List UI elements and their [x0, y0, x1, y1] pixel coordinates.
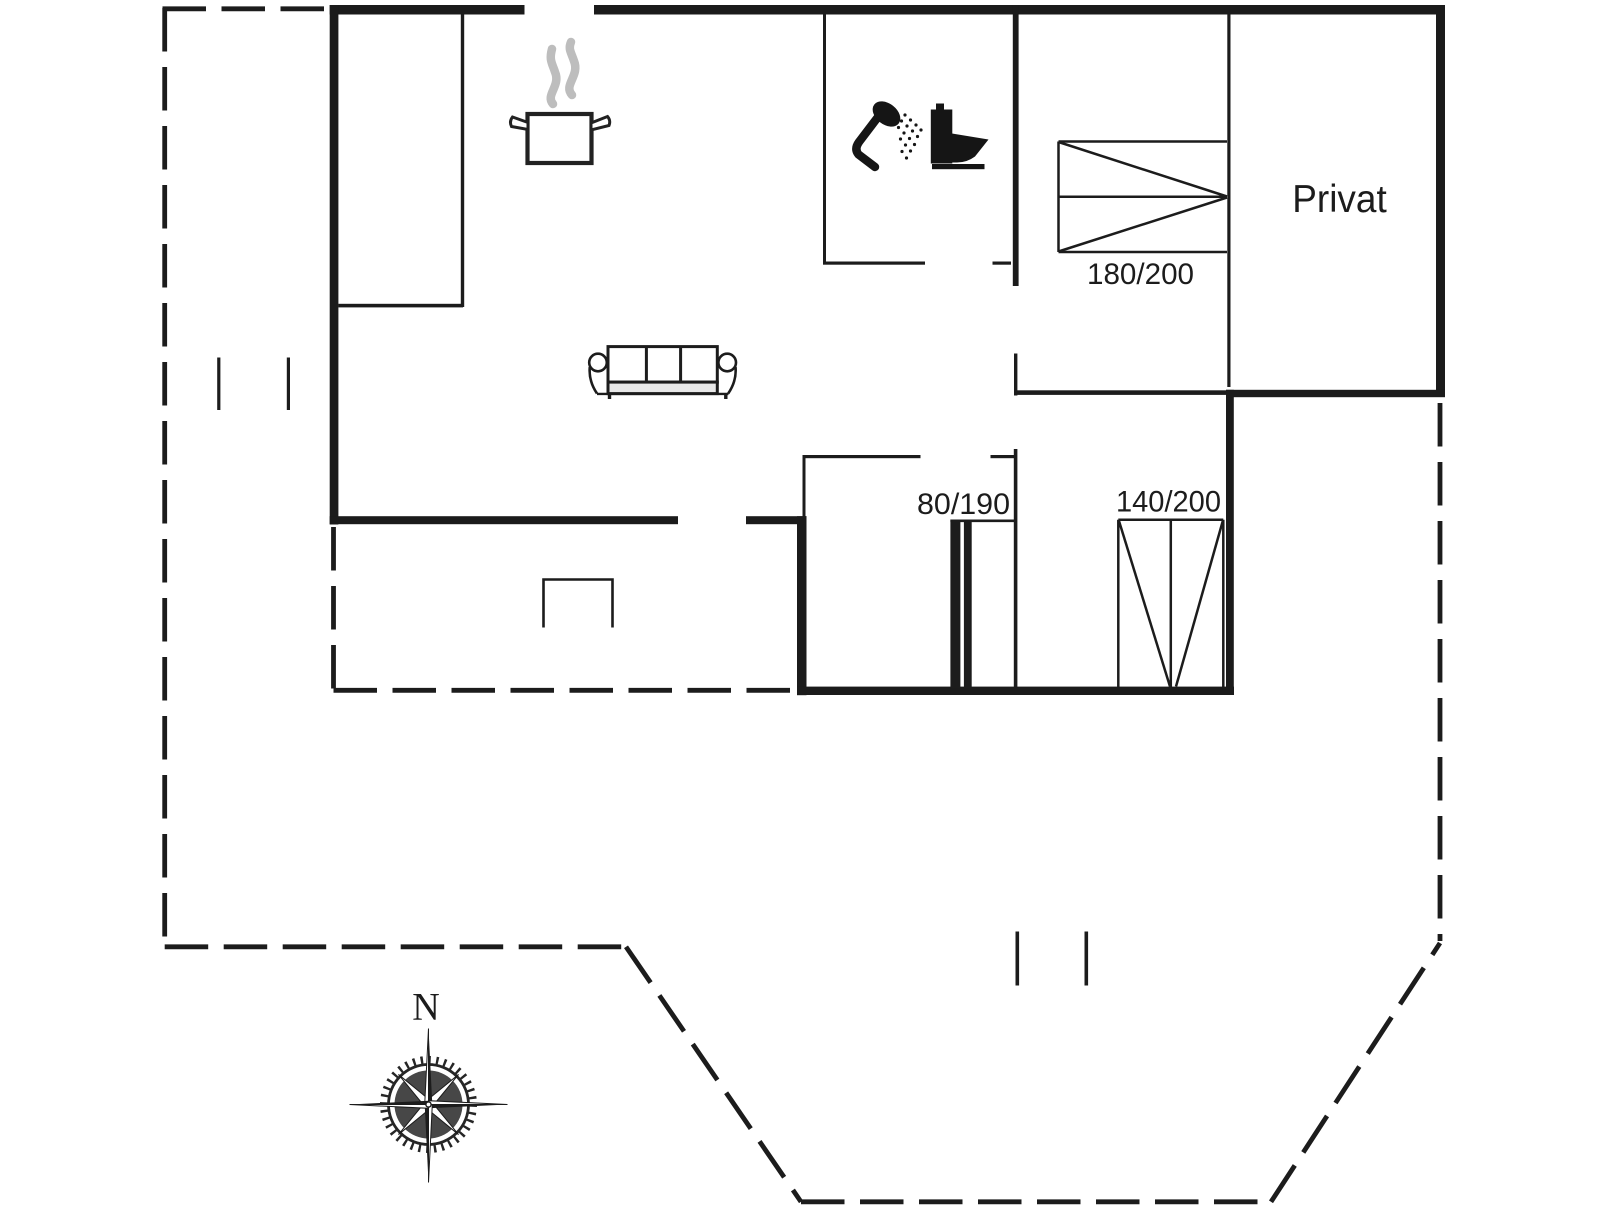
svg-text:80/190: 80/190 [917, 488, 1010, 521]
svg-text:140/200: 140/200 [1116, 486, 1221, 519]
svg-text:180/200: 180/200 [1087, 258, 1194, 291]
svg-text:Privat: Privat [1292, 178, 1387, 221]
svg-text:N: N [412, 986, 440, 1029]
